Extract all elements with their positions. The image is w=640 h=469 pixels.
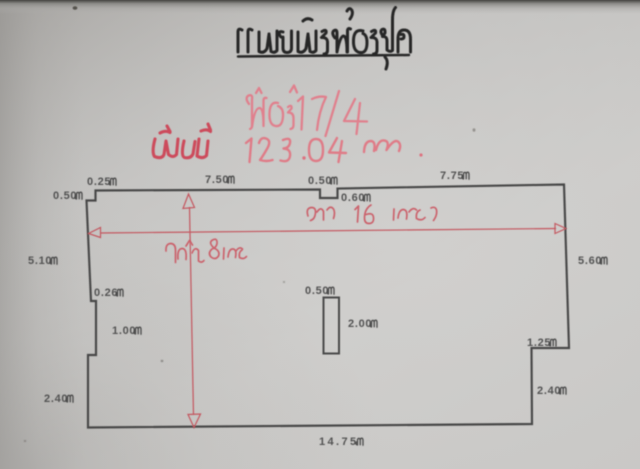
svg-text:1.00: 1.00 xyxy=(112,325,136,337)
svg-text:2.40: 2.40 xyxy=(44,393,68,405)
svg-text:0.50: 0.50 xyxy=(308,175,332,187)
svg-text:7.75: 7.75 xyxy=(440,170,464,182)
svg-text:0.50: 0.50 xyxy=(53,190,77,202)
svg-text:2.00: 2.00 xyxy=(348,318,372,330)
svg-text:2.40: 2.40 xyxy=(537,385,561,397)
svg-text:0.50: 0.50 xyxy=(305,285,329,297)
svg-text:1.25: 1.25 xyxy=(527,337,551,349)
svg-text:0.26: 0.26 xyxy=(94,287,118,299)
svg-text:5.10: 5.10 xyxy=(28,255,52,267)
svg-text:0.25: 0.25 xyxy=(87,176,111,188)
svg-text:14.75: 14.75 xyxy=(319,436,359,448)
svg-text:5.60: 5.60 xyxy=(578,255,602,267)
svg-text:7.50: 7.50 xyxy=(205,174,229,186)
svg-text:0.60: 0.60 xyxy=(341,192,365,204)
